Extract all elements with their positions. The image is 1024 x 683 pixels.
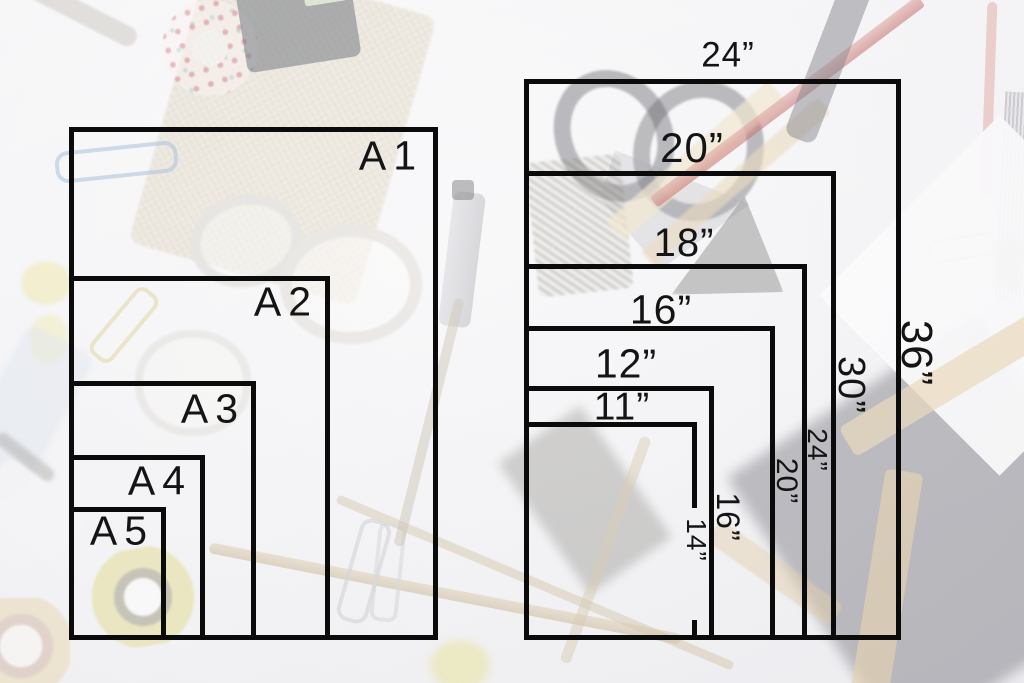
height-label-30in: 30” [832,356,870,414]
rect-11x14-right-edge-top-segment [692,427,697,508]
width-label-12in: 12” [595,344,657,385]
width-label-11in: 11” [594,388,650,427]
height-label-16in: 16” [712,492,744,541]
size-comparison-diagram: A1 A2 A3 A4 A5 24” 20” 18” 16” 12” 11” 3… [0,0,1024,683]
height-label-24in: 24” [803,428,831,471]
height-label-14in: 14” [682,518,710,561]
width-label-16in: 16” [630,290,692,331]
height-label-20in: 20” [771,458,801,504]
rect-11x14 [524,422,697,640]
inch-series-diagram: 24” 20” 18” 16” 12” 11” 36” 30” 24” 20” … [0,0,1024,683]
width-label-20in: 20” [660,127,724,169]
rect-11x14-right-edge-bottom-segment [692,620,697,635]
width-label-18in: 18” [654,223,715,263]
height-label-36in: 36” [894,320,938,387]
width-label-24in: 24” [701,38,755,73]
